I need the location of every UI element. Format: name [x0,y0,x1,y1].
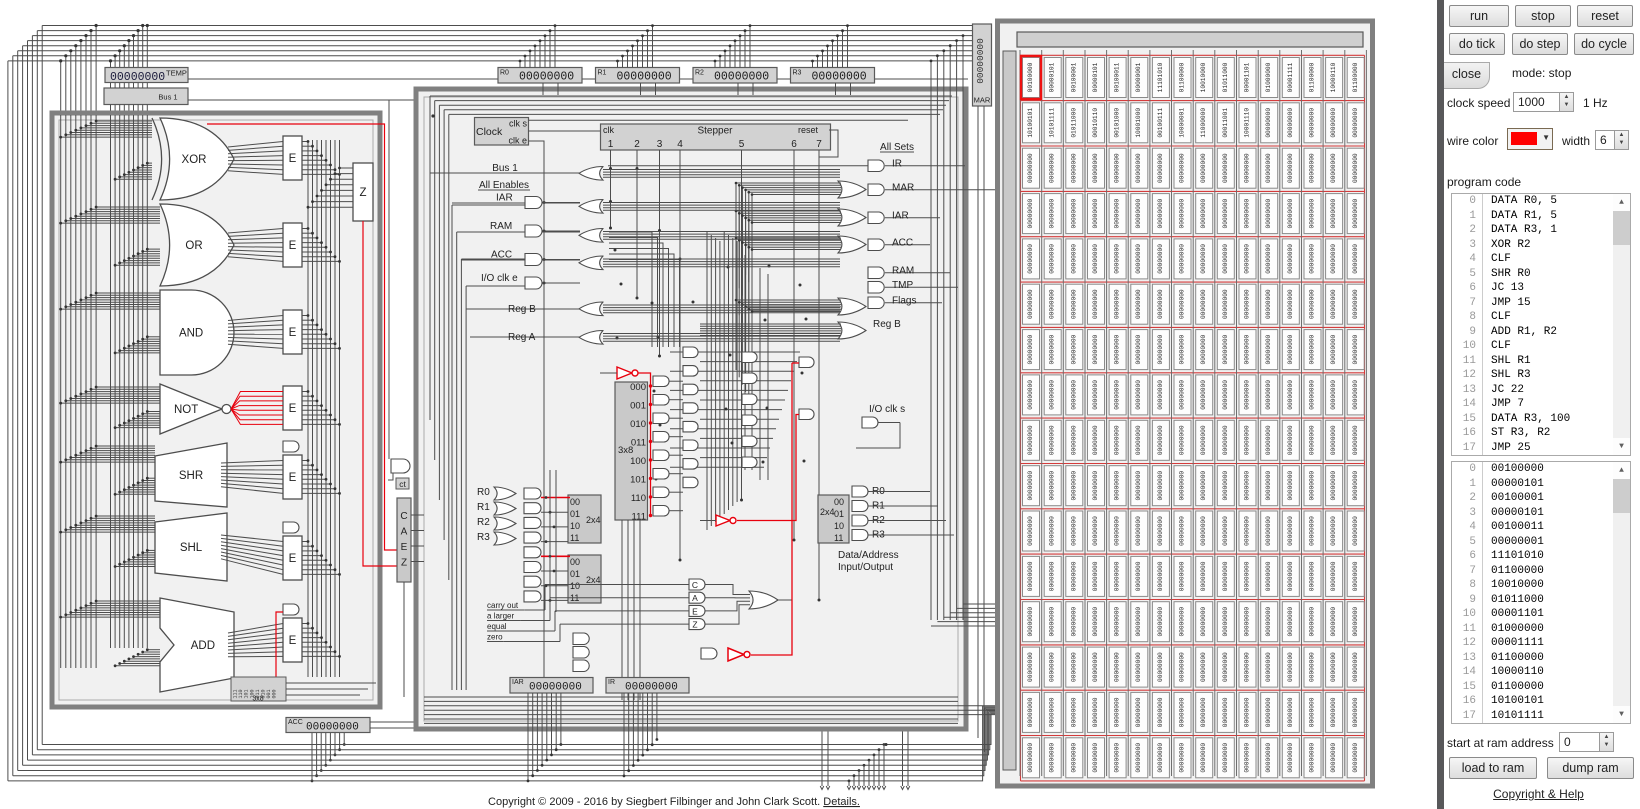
svg-text:00000000: 00000000 [1070,380,1077,410]
svg-text:00000000: 00000000 [1200,244,1207,274]
svg-text:00000000: 00000000 [1200,697,1207,727]
svg-text:00000000: 00000000 [1157,289,1164,319]
svg-text:00000000: 00000000 [1309,334,1316,364]
svg-text:00000000: 00000000 [1222,334,1229,364]
svg-text:00000000: 00000000 [1352,652,1359,682]
svg-text:MAR: MAR [892,183,914,194]
svg-text:00000000: 00000000 [1092,516,1099,546]
svg-text:00000000: 00000000 [1265,607,1272,637]
svg-text:00000000: 00000000 [1352,380,1359,410]
svg-text:TMP: TMP [892,280,913,291]
svg-text:00000000: 00000000 [1114,471,1121,501]
svg-text:00000000: 00000000 [1135,697,1142,727]
svg-text:00000000: 00000000 [1352,561,1359,591]
svg-text:3x8: 3x8 [618,445,633,456]
svg-text:E: E [289,153,297,165]
svg-text:R1: R1 [477,502,490,513]
svg-text:Data/Address: Data/Address [838,550,899,561]
svg-text:6: 6 [791,139,797,150]
svg-text:10001110: 10001110 [1244,108,1251,138]
svg-text:00000000: 00000000 [1179,244,1186,274]
svg-text:00000000: 00000000 [1287,198,1294,228]
svg-text:00000000: 00000000 [812,71,867,84]
svg-text:00000000: 00000000 [1244,607,1251,637]
svg-text:00000000: 00000000 [1265,334,1272,364]
svg-text:00000000: 00000000 [1179,652,1186,682]
svg-text:All Enables: All Enables [479,180,529,191]
svg-text:00000000: 00000000 [1330,607,1337,637]
svg-text:Reg A: Reg A [508,332,536,343]
svg-text:1: 1 [608,139,614,150]
svg-text:11000000: 11000000 [1200,108,1207,138]
svg-text:00000000: 00000000 [1135,471,1142,501]
svg-text:00000000: 00000000 [1265,516,1272,546]
svg-text:00000000: 00000000 [1179,198,1186,228]
svg-text:00000001: 00000001 [1135,62,1142,92]
svg-text:Stepper: Stepper [697,126,733,137]
svg-text:000: 000 [272,689,278,698]
svg-text:10000110: 10000110 [1330,62,1337,92]
svg-text:Bus 1: Bus 1 [158,93,177,102]
svg-text:clk e: clk e [508,136,527,146]
svg-text:10: 10 [570,521,580,531]
svg-text:00100000: 00100000 [1027,62,1034,92]
svg-text:ACC: ACC [892,238,913,249]
svg-text:00000000: 00000000 [1157,334,1164,364]
svg-text:00000000: 00000000 [1200,743,1207,773]
svg-text:00000000: 00000000 [1049,198,1056,228]
svg-text:2x4: 2x4 [820,507,835,517]
svg-text:00000000: 00000000 [1049,561,1056,591]
svg-text:R3: R3 [793,70,802,77]
svg-text:reset: reset [798,125,819,135]
svg-text:00000000: 00000000 [1092,153,1099,183]
svg-text:00000000: 00000000 [1287,334,1294,364]
svg-text:110: 110 [631,493,646,504]
svg-text:OR: OR [185,240,202,252]
svg-text:carry out: carry out [487,601,519,610]
svg-text:00000000: 00000000 [1265,652,1272,682]
svg-text:01100000: 01100000 [1352,62,1359,92]
svg-text:00000000: 00000000 [1309,380,1316,410]
svg-text:00000000: 00000000 [1330,244,1337,274]
svg-text:00000000: 00000000 [1265,198,1272,228]
svg-text:00000000: 00000000 [1265,743,1272,773]
svg-text:00000000: 00000000 [1135,652,1142,682]
svg-text:00000000: 00000000 [1200,425,1207,455]
svg-text:00000000: 00000000 [1200,516,1207,546]
svg-text:00000000: 00000000 [1265,380,1272,410]
svg-text:00000000: 00000000 [1309,516,1316,546]
svg-text:00000000: 00000000 [1352,471,1359,501]
svg-text:00000000: 00000000 [529,682,582,694]
svg-text:00000000: 00000000 [1222,153,1229,183]
svg-text:00000000: 00000000 [1092,425,1099,455]
svg-text:00000000: 00000000 [1309,153,1316,183]
svg-text:10: 10 [834,521,844,531]
svg-text:00000000: 00000000 [1114,289,1121,319]
svg-text:00000000: 00000000 [1049,289,1056,319]
svg-text:3: 3 [657,139,663,150]
svg-text:00000000: 00000000 [1244,516,1251,546]
svg-text:00000000: 00000000 [1114,516,1121,546]
svg-text:00000000: 00000000 [1309,244,1316,274]
svg-text:01: 01 [570,509,580,519]
svg-text:00000000: 00000000 [1179,607,1186,637]
svg-text:00000000: 00000000 [1309,289,1316,319]
svg-text:E: E [289,472,297,484]
svg-text:00000000: 00000000 [1049,607,1056,637]
svg-text:00000000: 00000000 [1179,743,1186,773]
svg-text:00000000: 00000000 [1070,425,1077,455]
svg-text:00000000: 00000000 [1027,652,1034,682]
svg-text:00000000: 00000000 [1287,289,1294,319]
svg-text:00000000: 00000000 [1265,108,1272,138]
svg-text:00000000: 00000000 [1070,244,1077,274]
svg-text:00000000: 00000000 [1092,607,1099,637]
svg-text:00000000: 00000000 [1070,697,1077,727]
svg-text:AND: AND [179,328,203,340]
svg-text:01100000: 01100000 [1179,62,1186,92]
svg-text:00000000: 00000000 [1244,289,1251,319]
svg-text:00000000: 00000000 [1114,380,1121,410]
svg-text:00000000: 00000000 [1200,471,1207,501]
svg-text:Bus 1: Bus 1 [492,163,518,174]
svg-text:00000000: 00000000 [1027,244,1034,274]
svg-text:00000000: 00000000 [1222,289,1229,319]
svg-text:2: 2 [634,139,640,150]
svg-text:3x8: 3x8 [252,696,263,703]
svg-text:11101010: 11101010 [1157,62,1164,92]
svg-text:00000000: 00000000 [1179,153,1186,183]
svg-text:00000000: 00000000 [1027,153,1034,183]
svg-text:00000000: 00000000 [1135,198,1142,228]
svg-text:00000000: 00000000 [1222,425,1229,455]
svg-text:00000000: 00000000 [1265,425,1272,455]
svg-text:00000000: 00000000 [1157,198,1164,228]
svg-text:00000000: 00000000 [1222,244,1229,274]
svg-text:00000000: 00000000 [1244,198,1251,228]
svg-text:00000000: 00000000 [1135,561,1142,591]
svg-text:00000000: 00000000 [1200,561,1207,591]
svg-text:00000000: 00000000 [1287,380,1294,410]
svg-text:00000000: 00000000 [1157,516,1164,546]
svg-text:00000000: 00000000 [1265,697,1272,727]
svg-text:00000000: 00000000 [1092,743,1099,773]
svg-text:00000000: 00000000 [1157,697,1164,727]
svg-text:00000000: 00000000 [1157,561,1164,591]
svg-text:I/O clk s: I/O clk s [869,404,905,415]
svg-text:00000000: 00000000 [1287,743,1294,773]
svg-text:00000000: 00000000 [1330,334,1337,364]
svg-text:00000000: 00000000 [1092,334,1099,364]
svg-text:00000000: 00000000 [1179,380,1186,410]
svg-text:00000000: 00000000 [1070,334,1077,364]
svg-text:Reg B: Reg B [873,319,901,330]
svg-text:00000000: 00000000 [1244,743,1251,773]
svg-text:4: 4 [677,139,683,150]
svg-text:00000000: 00000000 [1222,516,1229,546]
svg-text:00000000: 00000000 [1114,607,1121,637]
svg-text:00000000: 00000000 [1287,652,1294,682]
svg-text:00000000: 00000000 [1222,652,1229,682]
svg-text:00000000: 00000000 [1049,425,1056,455]
svg-text:00000000: 00000000 [1330,743,1337,773]
svg-text:E: E [289,635,297,647]
svg-text:MAR: MAR [974,96,991,105]
svg-text:IR: IR [608,679,615,686]
svg-text:00000000: 00000000 [1049,697,1056,727]
svg-text:00000000: 00000000 [1352,334,1359,364]
svg-text:00000000: 00000000 [1309,108,1316,138]
svg-text:10100101: 10100101 [1027,108,1034,138]
svg-text:101: 101 [630,475,646,486]
svg-text:00000000: 00000000 [1135,743,1142,773]
svg-text:00000000: 00000000 [1070,471,1077,501]
svg-text:10101111: 10101111 [1049,108,1056,138]
svg-text:00000000: 00000000 [1157,652,1164,682]
svg-text:00000000: 00000000 [1309,697,1316,727]
svg-text:00001111: 00001111 [1287,62,1294,92]
svg-text:00000000: 00000000 [1092,471,1099,501]
svg-text:NOT: NOT [174,404,198,416]
svg-text:00000000: 00000000 [1157,380,1164,410]
svg-text:00010110: 00010110 [1092,108,1099,138]
svg-text:001: 001 [630,401,646,412]
svg-text:00000000: 00000000 [1200,652,1207,682]
svg-text:00000000: 00000000 [1092,289,1099,319]
svg-text:00: 00 [834,497,844,507]
svg-text:zero: zero [487,633,503,642]
svg-text:00000000: 00000000 [1200,289,1207,319]
svg-text:00000000: 00000000 [1179,289,1186,319]
svg-text:00000000: 00000000 [1244,697,1251,727]
svg-text:00000000: 00000000 [1049,153,1056,183]
svg-text:00000000: 00000000 [1027,334,1034,364]
svg-text:10000001: 10000001 [1179,108,1186,138]
svg-text:Clock: Clock [476,126,503,138]
svg-text:00000000: 00000000 [1222,697,1229,727]
svg-text:SHR: SHR [179,470,203,482]
svg-text:00000000: 00000000 [1330,471,1337,501]
svg-text:00001101: 00001101 [1244,62,1251,92]
svg-text:00000000: 00000000 [1049,244,1056,274]
svg-text:00000000: 00000000 [1244,244,1251,274]
svg-text:00000000: 00000000 [1244,561,1251,591]
svg-text:00000000: 00000000 [1135,380,1142,410]
svg-text:00000000: 00000000 [1114,652,1121,682]
svg-text:00000000: 00000000 [1330,198,1337,228]
svg-text:clk: clk [603,125,614,135]
svg-text:00: 00 [570,497,580,507]
svg-text:00000000: 00000000 [1352,697,1359,727]
svg-text:01: 01 [570,569,580,579]
svg-text:00000000: 00000000 [1200,380,1207,410]
svg-text:00000000: 00000000 [1222,471,1229,501]
svg-text:00000101: 00000101 [1092,62,1099,92]
svg-text:R0: R0 [500,70,509,77]
svg-text:00000000: 00000000 [1070,743,1077,773]
svg-text:00000000: 00000000 [1330,652,1337,682]
svg-text:00000101: 00000101 [1049,62,1056,92]
svg-text:00000000: 00000000 [1352,516,1359,546]
svg-text:00000000: 00000000 [1309,561,1316,591]
svg-text:00000000: 00000000 [1352,108,1359,138]
svg-text:100: 100 [630,456,646,467]
svg-text:00000000: 00000000 [1049,516,1056,546]
svg-text:00000000: 00000000 [1287,697,1294,727]
svg-text:00000000: 00000000 [1244,652,1251,682]
svg-text:00000000: 00000000 [1330,153,1337,183]
svg-text:00000000: 00000000 [1114,743,1121,773]
svg-text:RAM: RAM [892,266,914,277]
svg-text:Z: Z [401,558,407,569]
svg-text:00000000: 00000000 [1309,652,1316,682]
svg-text:C: C [400,511,407,522]
svg-text:TEMP: TEMP [166,69,187,78]
svg-text:00000000: 00000000 [1287,425,1294,455]
svg-text:E: E [692,606,698,616]
svg-text:IR: IR [892,159,902,170]
svg-text:00000000: 00000000 [1352,244,1359,274]
svg-text:7: 7 [816,139,822,150]
svg-text:00000000: 00000000 [1330,289,1337,319]
svg-text:00000000: 00000000 [1027,198,1034,228]
svg-text:00000000: 00000000 [1070,289,1077,319]
svg-text:00100001: 00100001 [1070,62,1077,92]
svg-text:00000000: 00000000 [1092,380,1099,410]
svg-text:00101000: 00101000 [1114,108,1121,138]
svg-text:00000000: 00000000 [1157,244,1164,274]
svg-text:00000000: 00000000 [1222,607,1229,637]
svg-text:00000000: 00000000 [1135,607,1142,637]
svg-text:00000000: 00000000 [1330,697,1337,727]
svg-text:R2: R2 [695,70,704,77]
svg-text:00000000: 00000000 [1027,289,1034,319]
svg-text:00000000: 00000000 [1179,425,1186,455]
svg-text:11: 11 [570,533,579,543]
svg-text:00000000: 00000000 [1265,289,1272,319]
svg-text:00000000: 00000000 [1200,607,1207,637]
svg-text:00000000: 00000000 [1309,425,1316,455]
svg-text:00000000: 00000000 [1114,334,1121,364]
svg-text:00000000: 00000000 [1330,516,1337,546]
svg-text:00000000: 00000000 [1157,607,1164,637]
svg-text:000: 000 [630,382,646,393]
svg-text:10: 10 [570,581,580,591]
svg-text:00000000: 00000000 [1049,380,1056,410]
svg-text:00000000: 00000000 [1027,380,1034,410]
svg-text:equal: equal [487,622,507,631]
svg-text:00000000: 00000000 [1287,561,1294,591]
svg-text:00000000: 00000000 [1135,244,1142,274]
svg-text:E: E [289,327,297,339]
svg-text:00000000: 00000000 [1027,471,1034,501]
svg-text:00000000: 00000000 [1027,607,1034,637]
svg-text:00000000: 00000000 [1244,425,1251,455]
svg-text:00000000: 00000000 [1027,743,1034,773]
svg-text:Flags: Flags [892,296,916,307]
svg-text:00000000: 00000000 [1287,471,1294,501]
svg-text:00000000: 00000000 [1070,607,1077,637]
svg-text:00000000: 00000000 [1092,244,1099,274]
svg-text:C: C [692,580,698,590]
svg-text:00000000: 00000000 [1114,153,1121,183]
svg-text:00000000: 00000000 [1200,334,1207,364]
svg-text:00000000: 00000000 [1244,334,1251,364]
svg-text:Z: Z [359,187,366,199]
svg-text:I/O clk e: I/O clk e [481,273,518,284]
svg-text:Z: Z [692,620,697,630]
svg-text:ADD: ADD [191,640,215,652]
svg-text:00000000: 00000000 [1157,471,1164,501]
svg-text:ACC: ACC [288,719,303,726]
svg-text:00000000: 00000000 [1287,244,1294,274]
svg-text:Input/Output: Input/Output [838,562,893,573]
svg-text:SHL: SHL [180,542,203,554]
svg-text:00000000: 00000000 [1157,153,1164,183]
svg-text:All Sets: All Sets [880,142,914,153]
svg-text:00000000: 00000000 [1309,471,1316,501]
svg-text:A: A [401,527,408,538]
svg-text:00000000: 00000000 [1049,743,1056,773]
svg-text:10010000: 10010000 [1200,62,1207,92]
svg-text:XOR: XOR [182,154,207,166]
svg-text:00000000: 00000000 [1092,697,1099,727]
svg-text:00000000: 00000000 [1049,334,1056,364]
svg-text:Copyright © 2009 - 2016 by Sie: Copyright © 2009 - 2016 by Siegbert Filb… [488,796,860,808]
svg-text:00000000: 00000000 [1309,743,1316,773]
svg-text:00000000: 00000000 [1287,516,1294,546]
svg-text:00000000: 00000000 [1179,334,1186,364]
svg-text:00000000: 00000000 [1157,743,1164,773]
svg-text:00000000: 00000000 [1287,108,1294,138]
svg-text:a larger: a larger [487,612,514,621]
svg-text:00000000: 00000000 [1114,561,1121,591]
svg-text:ct: ct [399,479,406,489]
svg-text:10001000: 10001000 [1135,108,1142,138]
svg-text:00000000: 00000000 [625,682,678,694]
svg-text:IAR: IAR [892,211,909,222]
svg-text:ACC: ACC [491,250,512,261]
svg-text:00000000: 00000000 [617,71,672,84]
svg-text:00000000: 00000000 [1309,198,1316,228]
svg-text:00000000: 00000000 [1309,607,1316,637]
svg-text:00000000: 00000000 [1352,289,1359,319]
svg-text:00000000: 00000000 [1265,561,1272,591]
svg-text:00000000: 00000000 [110,71,165,84]
svg-text:00000000: 00000000 [1157,425,1164,455]
svg-text:00000000: 00000000 [1330,380,1337,410]
svg-text:E: E [401,542,408,553]
svg-text:E: E [289,240,297,252]
svg-text:00000000: 00000000 [1222,198,1229,228]
svg-text:00000000: 00000000 [1179,516,1186,546]
svg-text:00000000: 00000000 [1222,743,1229,773]
svg-text:01100000: 01100000 [1309,62,1316,92]
svg-text:IAR: IAR [496,193,513,204]
svg-text:00000000: 00000000 [1352,425,1359,455]
svg-text:00000000: 00000000 [1092,652,1099,682]
svg-text:00100011: 00100011 [1114,62,1121,92]
svg-text:00000000: 00000000 [1265,244,1272,274]
svg-text:00000000: 00000000 [1265,153,1272,183]
svg-text:00000000: 00000000 [1070,652,1077,682]
svg-text:00011001: 00011001 [1222,108,1229,138]
svg-text:00000000: 00000000 [1049,471,1056,501]
svg-text:RAM: RAM [490,221,512,232]
svg-text:00000000: 00000000 [1179,471,1186,501]
